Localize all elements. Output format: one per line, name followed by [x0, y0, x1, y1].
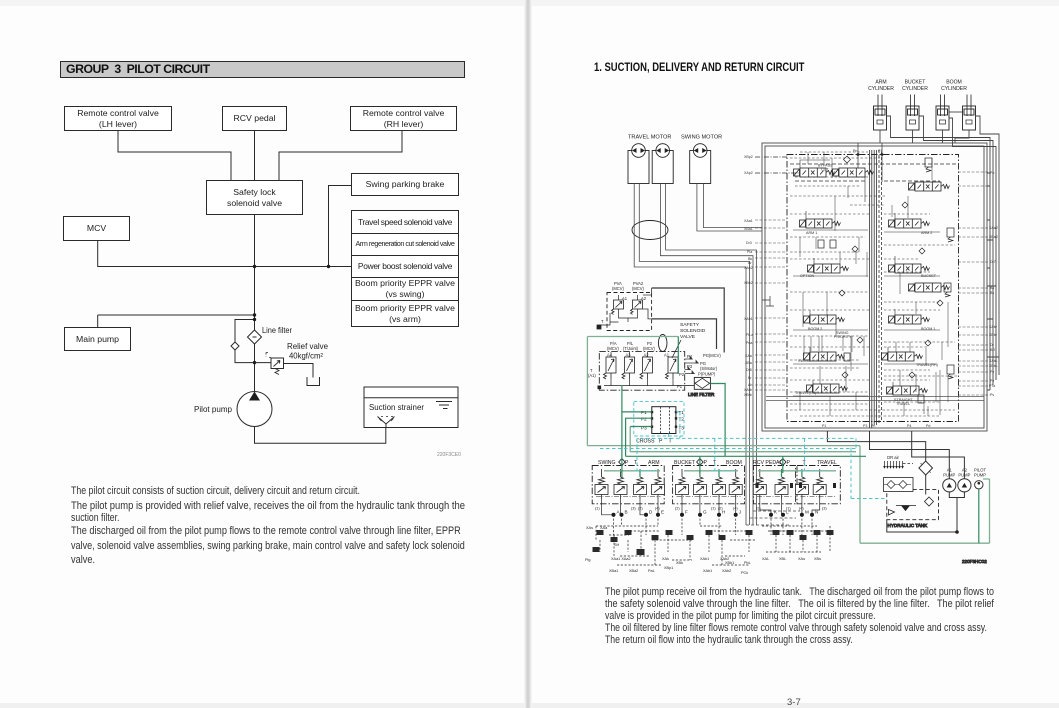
- svg-text:TRAVEL(RH): TRAVEL(RH): [916, 363, 938, 367]
- svg-text:Dr3: Dr3: [746, 241, 752, 245]
- svg-text:XAbL: XAbL: [989, 359, 998, 363]
- svg-text:XAb2: XAb2: [722, 569, 731, 573]
- svg-text:PG(MCV): PG(MCV): [703, 353, 721, 358]
- svg-text:XAa1: XAa1: [744, 219, 753, 223]
- svg-text:Dr5: Dr5: [746, 368, 752, 372]
- svg-text:XBb1: XBb1: [725, 561, 734, 565]
- svg-text:Pd: Pd: [926, 424, 930, 428]
- svg-text:XAa2: XAa2: [989, 226, 998, 230]
- svg-text:E: E: [661, 510, 664, 515]
- svg-text:(1): (1): [595, 507, 600, 511]
- svg-text:XAa1 XAa2: XAa1 XAa2: [611, 557, 631, 561]
- svg-text:Pv: Pv: [990, 393, 994, 397]
- svg-text:P3: P3: [687, 364, 693, 369]
- svg-text:OPTION: OPTION: [800, 274, 814, 278]
- svg-text:(2): (2): [675, 507, 680, 511]
- svg-text:XBs: XBs: [814, 557, 821, 561]
- svg-text:A1: A1: [664, 353, 670, 358]
- svg-text:(3): (3): [822, 507, 827, 511]
- svg-text:P2: P2: [641, 417, 647, 422]
- svg-text:XBp2: XBp2: [744, 155, 753, 159]
- svg-text:P1: P1: [878, 149, 882, 153]
- svg-text:A1: A1: [622, 296, 628, 301]
- svg-text:A2: A2: [641, 296, 647, 301]
- svg-text:BUCKET: BUCKET: [674, 460, 696, 466]
- svg-text:A3: A3: [626, 353, 632, 358]
- svg-text:ARM 2: ARM 2: [921, 231, 932, 235]
- svg-text:XBa1: XBa1: [744, 227, 753, 231]
- svg-text:XAb2: XAb2: [744, 266, 753, 270]
- svg-text:ARM: ARM: [648, 460, 660, 466]
- svg-text:(S/Motor): (S/Motor): [700, 366, 718, 371]
- svg-text:SWING MOTOR: SWING MOTOR: [681, 135, 722, 141]
- svg-text:XBa2: XBa2: [629, 569, 638, 573]
- svg-text:ARM: ARM: [875, 80, 886, 86]
- svg-text:PUMP: PUMP: [958, 473, 970, 478]
- svg-text:P: P: [659, 439, 663, 445]
- svg-text:BOOM 2: BOOM 2: [808, 327, 822, 331]
- svg-text:ARM 1: ARM 1: [806, 231, 817, 235]
- svg-text:M: M: [805, 510, 809, 515]
- svg-text:T: T: [669, 439, 673, 445]
- svg-text:SWING: SWING: [798, 359, 811, 363]
- svg-text:XAa: XAa: [600, 526, 608, 530]
- svg-text:Pilot pump: Pilot pump: [194, 404, 232, 414]
- svg-text:XAb1: XAb1: [744, 317, 753, 321]
- svg-text:Suction strainer: Suction strainer: [369, 402, 424, 412]
- svg-text:XAp2: XAp2: [744, 171, 753, 175]
- svg-text:P4: P4: [907, 424, 911, 428]
- svg-text:CYLINDER: CYLINDER: [868, 86, 894, 92]
- svg-text:J: J: [739, 510, 741, 515]
- svg-text:P1: P1: [822, 424, 826, 428]
- svg-text:XAb1: XAb1: [700, 557, 709, 561]
- svg-text:TRAVEL MOTOR: TRAVEL MOTOR: [628, 135, 671, 141]
- svg-text:XBa: XBa: [745, 361, 752, 365]
- svg-text:Pu: Pu: [990, 171, 994, 175]
- svg-text:HYDRAULIC TANK: HYDRAULIC TANK: [888, 523, 929, 528]
- svg-text:XAk: XAk: [662, 557, 669, 561]
- svg-text:SAFETY: SAFETY: [680, 322, 700, 328]
- svg-text:Ar: Ar: [748, 261, 752, 265]
- svg-text:TRAVEL(LH): TRAVEL(LH): [795, 391, 816, 395]
- svg-text:G: G: [703, 510, 707, 515]
- svg-text:Ak: Ak: [990, 286, 994, 290]
- svg-text:Br: Br: [748, 376, 752, 380]
- svg-text:H: H: [722, 510, 725, 515]
- svg-text:T3: T3: [679, 426, 685, 431]
- svg-text:F: F: [685, 510, 688, 515]
- svg-text:BOOM: BOOM: [726, 460, 742, 466]
- svg-text:PUMP: PUMP: [974, 473, 986, 478]
- svg-text:Pn: Pn: [853, 149, 857, 153]
- svg-text:Py: Py: [990, 370, 994, 374]
- svg-text:PbL: PbL: [744, 561, 751, 565]
- svg-text:T1: T1: [679, 410, 685, 415]
- svg-text:TRAVEL: TRAVEL: [817, 460, 837, 466]
- svg-text:XBtb: XBtb: [744, 393, 752, 397]
- svg-text:P2: P2: [679, 372, 685, 377]
- svg-text:XAb1: XAb1: [703, 569, 712, 573]
- svg-text:Pia: Pia: [747, 250, 752, 254]
- svg-text:PaL: PaL: [648, 569, 655, 573]
- svg-text:P3: P3: [863, 424, 867, 428]
- svg-text:L: L: [786, 510, 789, 515]
- svg-text:XBa1: XBa1: [609, 569, 618, 573]
- svg-text:CROSS: CROSS: [636, 439, 655, 445]
- svg-text:Bk: Bk: [990, 291, 994, 295]
- svg-text:A4: A4: [607, 353, 613, 358]
- svg-text:40kgf/cm²: 40kgf/cm²: [289, 351, 323, 361]
- svg-text:XAs: XAs: [798, 557, 805, 561]
- svg-text:P: P: [787, 460, 791, 466]
- svg-text:A2: A2: [644, 353, 650, 358]
- svg-text:BOOM: BOOM: [946, 80, 962, 86]
- svg-text:VALVE: VALVE: [680, 334, 696, 340]
- svg-text:P1: P1: [677, 384, 683, 389]
- svg-text:XBL: XBL: [779, 557, 786, 561]
- svg-text:PUMP: PUMP: [943, 473, 955, 478]
- svg-text:P4: P4: [687, 354, 693, 359]
- svg-text:XBbL: XBbL: [989, 364, 998, 368]
- svg-text:Relief valve: Relief valve: [287, 341, 328, 351]
- svg-text:LINE FILTER: LINE FILTER: [688, 392, 715, 397]
- svg-text:CYLINDER: CYLINDER: [941, 86, 967, 92]
- svg-text:220F3HC02: 220F3HC02: [962, 559, 987, 564]
- svg-text:P(PUMP): P(PUMP): [698, 372, 716, 377]
- svg-text:XAL: XAL: [762, 557, 769, 561]
- svg-text:Ah: Ah: [748, 383, 752, 387]
- svg-text:XBbr: XBbr: [989, 333, 998, 337]
- svg-text:XAa: XAa: [745, 354, 752, 358]
- svg-text:Pna: Pna: [746, 341, 752, 345]
- svg-text:(A1): (A1): [588, 373, 596, 378]
- svg-text:(MCV): (MCV): [612, 286, 624, 291]
- svg-text:BUCKET: BUCKET: [921, 274, 937, 278]
- svg-text:(1): (1): [711, 507, 716, 511]
- svg-text:Pz: Pz: [990, 379, 994, 383]
- svg-text:B: B: [625, 510, 628, 515]
- svg-text:(MCV): (MCV): [643, 346, 655, 351]
- svg-text:XBk: XBk: [676, 561, 683, 565]
- svg-text:SWING: SWING: [598, 460, 616, 466]
- svg-text:K: K: [774, 510, 778, 515]
- svg-text:D: D: [649, 510, 653, 515]
- svg-text:BUCKET: BUCKET: [905, 80, 926, 86]
- svg-text:Dr: Dr: [990, 343, 995, 347]
- svg-text:Dr7: Dr7: [990, 260, 996, 264]
- svg-text:P: P: [704, 460, 708, 466]
- svg-text:P: P: [625, 460, 629, 466]
- svg-text:(2): (2): [638, 507, 643, 511]
- svg-text:XAbr: XAbr: [989, 325, 998, 329]
- svg-text:AR: AR: [990, 348, 995, 352]
- svg-text:(MCV): (MCV): [632, 286, 644, 291]
- svg-text:XBp1: XBp1: [664, 566, 673, 570]
- svg-text:Line filter: Line filter: [262, 325, 292, 335]
- svg-text:Pn: Pn: [871, 424, 875, 428]
- svg-text:(MCV): (MCV): [607, 346, 619, 351]
- svg-text:SH: SH: [614, 543, 620, 547]
- svg-text:CUT: CUT: [821, 168, 829, 172]
- svg-text:XBb2: XBb2: [744, 281, 753, 285]
- svg-text:PiLa: PiLa: [746, 333, 753, 337]
- svg-text:XAs: XAs: [586, 526, 593, 530]
- svg-text:XBa2: XBa2: [989, 235, 998, 239]
- svg-text:CYLINDER: CYLINDER: [902, 86, 928, 92]
- svg-text:SOLENOID: SOLENOID: [680, 328, 706, 334]
- svg-text:(T/Joint): (T/Joint): [623, 346, 639, 351]
- svg-text:DR air: DR air: [887, 455, 899, 460]
- svg-text:T2: T2: [679, 417, 685, 422]
- svg-text:BOOM 1: BOOM 1: [921, 327, 935, 331]
- svg-text:(3): (3): [631, 507, 636, 511]
- svg-text:TRAVEL: TRAVEL: [896, 402, 910, 406]
- svg-text:XAtb: XAtb: [744, 388, 752, 392]
- svg-text:PCk: PCk: [741, 571, 748, 575]
- svg-text:220F3CE0: 220F3CE0: [437, 452, 461, 458]
- svg-text:T: T: [601, 319, 604, 324]
- svg-text:RCV PEDAL: RCV PEDAL: [753, 460, 783, 466]
- svg-text:Plg: Plg: [585, 558, 591, 562]
